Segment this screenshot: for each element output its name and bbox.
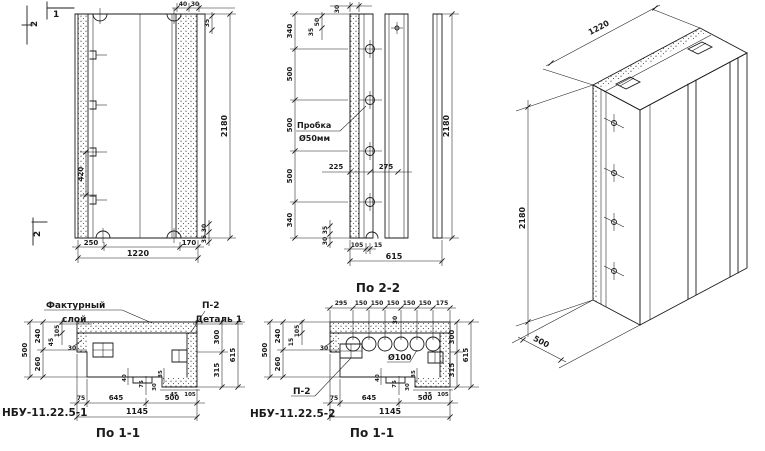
dim-phi100: Ø100 xyxy=(388,352,412,362)
dim-645b: 645 xyxy=(109,394,124,402)
p2-callout: П-2 xyxy=(291,358,351,397)
dim-35s2: 35 xyxy=(411,370,417,378)
lifting-socket-2 xyxy=(688,42,712,54)
drawing-sheet: 420 2 1 2 40 30 35 xyxy=(0,0,765,451)
dim-2180-iso: 2180 xyxy=(518,206,527,229)
dim-300R2: 300 xyxy=(448,330,456,345)
p2-ref-label: П-2 xyxy=(293,387,311,397)
view-label-po-1-1-b: По 1-1 xyxy=(350,426,394,440)
plug-label-line2: Ø50мм xyxy=(299,133,330,143)
lifting-socket-1 xyxy=(616,77,640,89)
section-mark-2-bottom: 2 xyxy=(32,218,47,245)
section-2-2-view: 340 500 500 500 340 30 50 35 Пробка Ø50м… xyxy=(286,2,459,295)
top-small-dims: 30 50 35 xyxy=(308,2,372,40)
dim-15L2: 15 xyxy=(288,338,295,346)
side-plug-marks xyxy=(604,114,624,280)
detail-block-right xyxy=(172,350,187,362)
plug-holes xyxy=(359,40,382,211)
top-dims-p2: 295 150 150 150 150 150 175 30 xyxy=(325,300,456,340)
dim-500a: 500 xyxy=(286,67,294,82)
dim-150d: 150 xyxy=(403,300,416,307)
dim-15s: 15 xyxy=(374,242,382,249)
dim-240L: 240 xyxy=(34,329,42,344)
dim-1145b2: 1145 xyxy=(379,407,402,416)
rib-section xyxy=(385,14,408,238)
detail-label: Деталь 1 xyxy=(195,315,242,325)
elevation-view: 420 2 1 2 40 30 35 xyxy=(22,1,236,263)
bottom-dims-p1: 75 645 500 1145 xyxy=(70,354,205,421)
dim-30c: 30 xyxy=(322,237,329,245)
dim-170: 170 xyxy=(182,239,197,247)
plan-view-nbu-11-22-5-1: Фактурный слой П-2 Деталь 1 500 240 260 xyxy=(2,301,245,440)
section-label-1: 1 xyxy=(53,10,59,20)
right-wall-strip xyxy=(176,14,197,238)
dim-150a: 150 xyxy=(355,300,368,307)
corner-dims-s2: 35 30 xyxy=(322,220,333,248)
dim-30s: 30 xyxy=(152,383,158,391)
dim-1220: 1220 xyxy=(127,249,150,258)
bottom-dims: 250 170 1220 xyxy=(72,239,204,263)
dim-30w: 30 xyxy=(392,316,399,324)
dim-30L2: 30 xyxy=(320,345,328,352)
dim-615R: 615 xyxy=(229,348,237,363)
dim-500b: 500 xyxy=(165,394,180,402)
dim-340a: 340 xyxy=(286,24,294,39)
dim-420: 420 xyxy=(77,167,85,182)
dim-500L2: 500 xyxy=(261,343,269,358)
dim-250: 250 xyxy=(84,239,99,247)
side-face xyxy=(593,85,640,325)
left-dims-p2: 500 240 260 105 15 30 xyxy=(261,319,340,379)
dim-105L: 105 xyxy=(54,325,61,338)
bottom-dims-p2: 75 645 500 1145 xyxy=(323,354,458,421)
facing-label-2: слой xyxy=(62,315,86,325)
dimension-2180-iso: 2180 xyxy=(516,85,593,337)
view-label-po-2-2: По 2-2 xyxy=(356,281,400,295)
dim-500b: 500 xyxy=(286,118,294,133)
anchor-marks xyxy=(90,51,107,204)
section-mark-2-top: 2 xyxy=(22,6,40,44)
dim-50t: 50 xyxy=(314,18,321,26)
isometric-view: 1220 2180 500 xyxy=(512,5,747,368)
dim-175: 175 xyxy=(436,300,449,307)
dim-1220-iso: 1220 xyxy=(587,18,611,37)
bottom-corner-dims: 30 35 xyxy=(201,220,212,246)
dim-75s: 75 xyxy=(139,380,145,388)
dim-260L2: 260 xyxy=(274,357,282,372)
dim-35b: 35 xyxy=(201,235,208,243)
dim-105s: 105 xyxy=(351,242,364,249)
dim-105s: 105 xyxy=(184,392,196,398)
dim-35: 35 xyxy=(204,19,211,27)
plan-view-nbu-11-22-5-2: 295 150 150 150 150 150 175 30 Ø100 П-2 xyxy=(250,300,479,440)
dim-225: 225 xyxy=(329,163,344,171)
dimension-2180-s2: 2180 xyxy=(442,11,459,240)
dim-2180-s2: 2180 xyxy=(442,114,451,137)
dim-1145b: 1145 xyxy=(126,407,149,416)
section-label-2: 2 xyxy=(30,21,40,27)
dim-150e: 150 xyxy=(419,300,432,307)
dim-40s2: 40 xyxy=(375,374,381,382)
dim-500L: 500 xyxy=(21,343,29,358)
dim-40s: 40 xyxy=(122,374,128,382)
facing-layer-section xyxy=(350,14,359,238)
corner-notches xyxy=(93,8,181,243)
dimension-500-iso: 500 xyxy=(512,300,640,368)
dim-315R: 315 xyxy=(213,363,221,378)
dim-615s: 615 xyxy=(386,252,403,261)
dim-35s: 35 xyxy=(158,370,164,378)
dim-75b: 75 xyxy=(77,395,85,402)
dim-150c: 150 xyxy=(387,300,400,307)
dim-30L: 30 xyxy=(68,345,76,352)
technical-drawing: 420 2 1 2 40 30 35 xyxy=(0,0,765,451)
dim-240L2: 240 xyxy=(274,329,282,344)
mark-nbu-1: НБУ-11.22.5-1 xyxy=(2,407,87,419)
dim-295: 295 xyxy=(335,300,348,307)
dim-645b2: 645 xyxy=(362,394,377,402)
right-dims-p2: 300 315 615 xyxy=(448,319,479,389)
right-dims-p1: 300 315 615 xyxy=(197,319,245,389)
dim-2180: 2180 xyxy=(220,114,229,137)
dim-75b2: 75 xyxy=(330,395,338,402)
section-mark-1-top: 1 xyxy=(47,2,74,20)
dim-75s2: 75 xyxy=(392,380,398,388)
section-label-2b: 2 xyxy=(33,231,43,237)
dim-340b: 340 xyxy=(286,213,294,228)
bottom-notch xyxy=(366,232,378,238)
dim-105L2: 105 xyxy=(294,325,301,338)
view-label-po-1-1-a: По 1-1 xyxy=(96,426,140,440)
detail-block-left-2 xyxy=(340,344,362,358)
dim-500c: 500 xyxy=(286,169,294,184)
dim-35c: 35 xyxy=(322,226,329,234)
top-anchor-cross xyxy=(391,22,403,34)
dim-300R: 300 xyxy=(213,330,221,345)
dim-150b: 150 xyxy=(371,300,384,307)
dim-40: 40 xyxy=(179,1,187,8)
detail-callout: П-2 Деталь 1 xyxy=(191,301,243,332)
dim-45L: 45 xyxy=(48,338,55,346)
dim-35t: 35 xyxy=(308,28,315,36)
hole-diameter-callout: Ø100 xyxy=(387,350,417,362)
bottom-dims-s2: 105 15 615 xyxy=(344,240,445,266)
dim-500b2: 500 xyxy=(418,394,433,402)
facing-layer-strip xyxy=(78,14,88,238)
detail-block-left xyxy=(93,343,113,357)
front-face xyxy=(640,53,747,325)
dim-500-iso: 500 xyxy=(532,334,551,350)
far-wall-edge xyxy=(433,14,442,238)
dim-275: 275 xyxy=(379,163,394,171)
dim-615R2: 615 xyxy=(462,348,470,363)
detail-ref-label: П-2 xyxy=(202,301,220,311)
dim-260L: 260 xyxy=(34,357,42,372)
dim-30s2: 30 xyxy=(405,383,411,391)
dimension-2180: 2180 xyxy=(198,11,236,240)
dim-30b: 30 xyxy=(201,224,208,232)
facing-layer-callout: Фактурный слой xyxy=(44,301,152,325)
facing-label-1: Фактурный xyxy=(46,301,105,311)
dim-105s2: 105 xyxy=(437,392,449,398)
mark-nbu-2: НБУ-11.22.5-2 xyxy=(250,408,335,420)
dim-30t: 30 xyxy=(334,5,341,13)
dim-30: 30 xyxy=(191,1,199,8)
dim-315R2: 315 xyxy=(448,363,456,378)
plug-label-line1: Пробка xyxy=(297,120,331,130)
hole-offset-dims: 225 275 xyxy=(322,163,412,175)
